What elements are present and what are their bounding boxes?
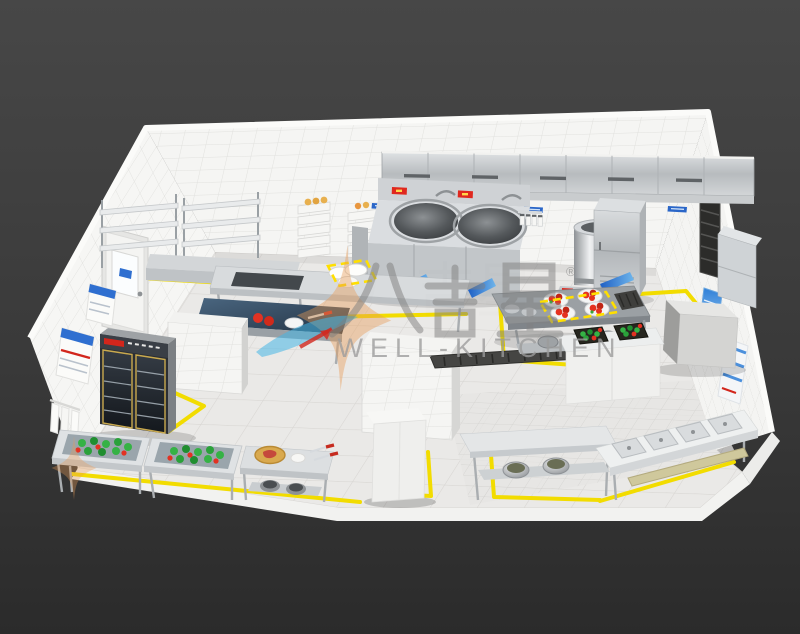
tomato [253, 313, 263, 323]
bowl [291, 454, 305, 463]
fridge-door [103, 350, 132, 428]
wok-right [458, 208, 522, 244]
wok-left [394, 203, 458, 239]
wall-poster-2 [56, 328, 94, 384]
tile-partition-left [168, 312, 248, 394]
brand-en-text: WELL-KITCHEN [337, 333, 622, 363]
side-cabinet [718, 226, 762, 308]
render-canvas: 八吉星 ® WELL-KITCHEN [0, 0, 800, 634]
door-handle [138, 292, 143, 297]
fridge-door [136, 355, 165, 433]
sauce-bottles [518, 210, 542, 226]
brand-cn-text: 八吉星 [355, 258, 535, 325]
tomato [264, 316, 274, 326]
vent-window [700, 198, 720, 278]
wall-poster-1 [86, 284, 116, 326]
kitchen-3d-rendering: 八吉星 ® WELL-KITCHEN [0, 0, 800, 634]
registered-mark: ® [566, 264, 576, 279]
wall-label [668, 206, 688, 213]
